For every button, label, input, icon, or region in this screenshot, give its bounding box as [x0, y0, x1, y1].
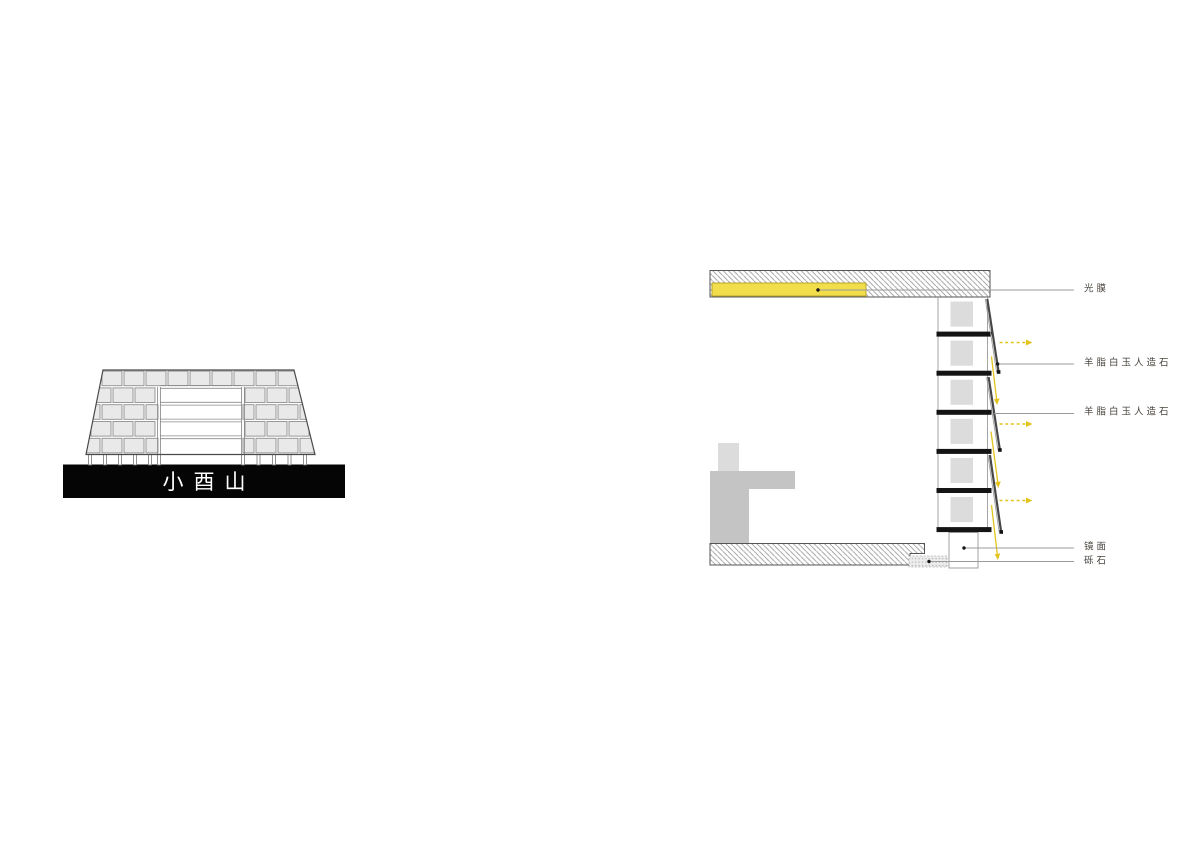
stone-block	[190, 371, 210, 386]
wall-divider-bar	[937, 371, 992, 376]
stone-block	[267, 388, 287, 403]
stone-block	[212, 371, 232, 386]
floor-slab	[710, 544, 925, 566]
stone-block	[102, 371, 122, 386]
architectural-diagram-page: 小酉山 光膜 羊脂白玉人造石 羊脂白玉人造石 镜面 砾石	[0, 0, 1200, 848]
stone-block	[256, 438, 276, 453]
figure-top-block	[718, 443, 739, 471]
stone-block	[124, 438, 144, 453]
wall-unit-stone	[951, 419, 974, 444]
label-light-film: 光膜	[1084, 285, 1109, 295]
wall-divider-bar	[937, 410, 992, 415]
label-mirror: 镜面	[1084, 543, 1109, 553]
stone-block	[102, 438, 122, 453]
panel-node	[998, 448, 1002, 452]
stone-block	[91, 422, 111, 437]
stone-block	[91, 388, 111, 403]
stone-block	[113, 388, 133, 403]
wall-divider-bar	[937, 488, 992, 493]
stone-block-rows	[80, 371, 318, 453]
stone-block	[256, 405, 276, 420]
wall-assembly	[937, 299, 1033, 560]
light-film-strip	[712, 283, 866, 296]
stone-block	[245, 422, 265, 437]
wall-unit-stone	[951, 380, 974, 405]
stone-block	[245, 388, 265, 403]
wall-divider-bar	[937, 449, 992, 454]
wall-unit-stone	[951, 458, 974, 483]
stone-block	[278, 438, 298, 453]
leader-dot	[996, 362, 999, 365]
wall-divider-bar	[937, 332, 992, 337]
stone-block	[146, 371, 166, 386]
stone-block	[146, 438, 158, 453]
stone-block	[80, 388, 89, 403]
stone-block	[124, 371, 144, 386]
stone-block	[113, 422, 133, 437]
light-arrow-head	[1026, 421, 1033, 427]
light-arrow-head	[1026, 498, 1033, 504]
light-ray-head	[994, 398, 1000, 405]
label-gravel: 砾石	[1084, 557, 1109, 567]
stone-block	[135, 388, 155, 403]
stone-block	[278, 405, 298, 420]
stone-block	[80, 422, 89, 437]
section-detail-diagram	[710, 271, 1074, 569]
stone-block	[256, 371, 276, 386]
stone-block	[124, 405, 144, 420]
diagram-artwork	[0, 0, 1200, 848]
stone-block	[311, 388, 318, 403]
mirror-box	[949, 533, 978, 569]
stonework	[80, 371, 318, 465]
stone-block	[80, 405, 100, 420]
stone-block	[135, 422, 155, 437]
stone-block	[80, 371, 100, 386]
panel-node	[997, 370, 1001, 374]
leader-dot	[927, 560, 930, 563]
leader-dot	[816, 288, 819, 291]
figure-body	[710, 471, 795, 544]
stone-block	[300, 371, 318, 386]
stone-block	[80, 438, 100, 453]
light-arrow-head	[1026, 340, 1033, 346]
wall-unit-stone	[951, 302, 974, 327]
panel-node	[999, 530, 1003, 534]
wall-divider-bar	[937, 527, 992, 532]
leader-dot	[962, 546, 965, 549]
stone-block	[300, 438, 318, 453]
stone-block	[168, 371, 188, 386]
inner-columns	[158, 387, 245, 454]
elevation-caption: 小酉山	[63, 464, 345, 498]
stone-block	[311, 422, 318, 437]
wall-unit-stone	[951, 497, 974, 522]
stone-block	[146, 405, 158, 420]
stone-block	[234, 371, 254, 386]
light-ray-head	[995, 481, 1001, 488]
light-ray-head	[995, 553, 1001, 560]
stone-block	[267, 422, 287, 437]
label-artificial-jade-stone-lower: 羊脂白玉人造石	[1084, 408, 1172, 418]
label-artificial-jade-stone-upper: 羊脂白玉人造石	[1084, 359, 1172, 369]
stone-block	[289, 422, 309, 437]
stone-block	[102, 405, 122, 420]
wall-unit-stone	[951, 341, 974, 366]
